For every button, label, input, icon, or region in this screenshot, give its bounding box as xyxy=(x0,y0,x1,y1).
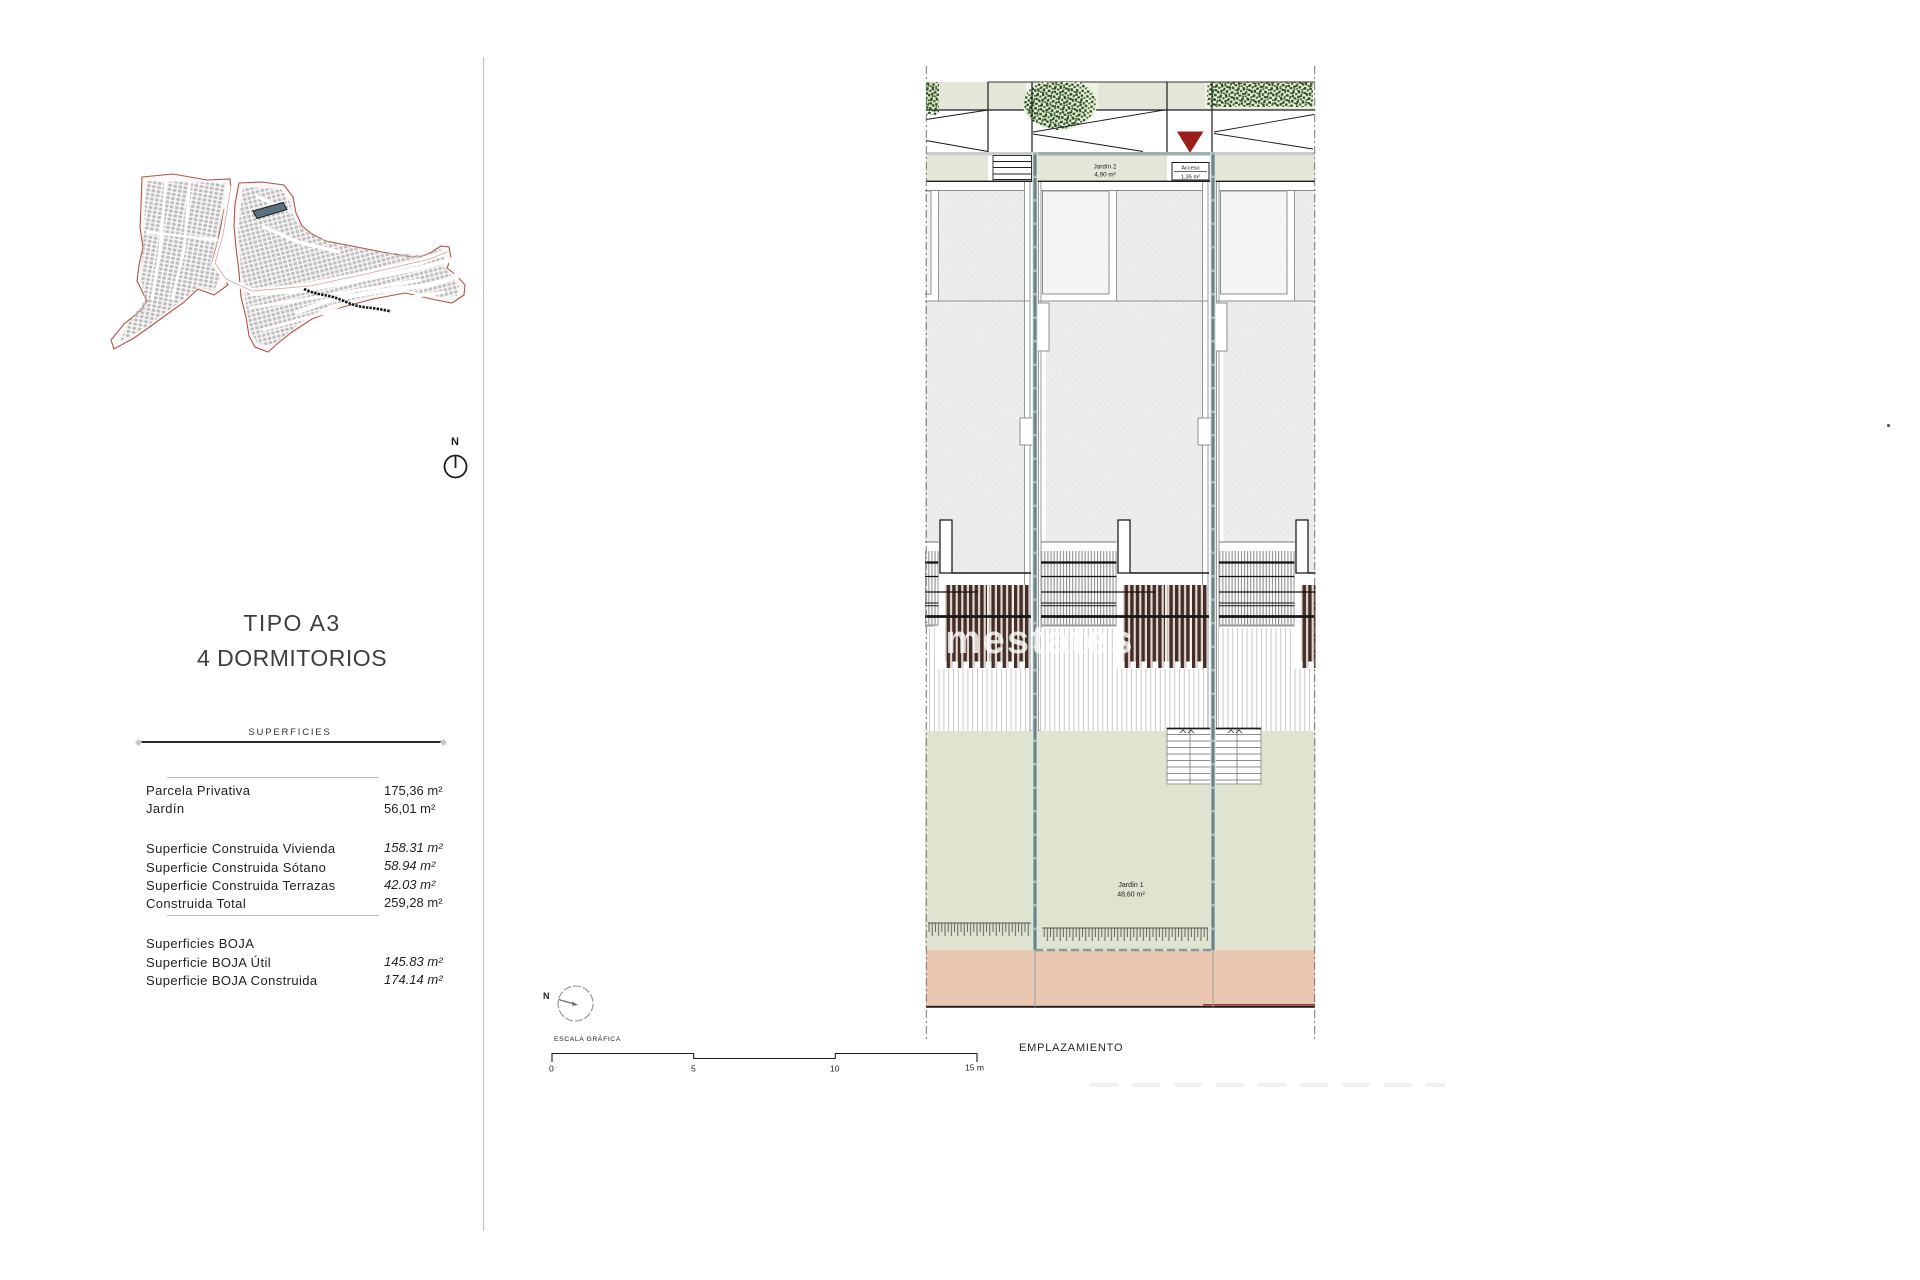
svg-text:0: 0 xyxy=(549,1064,554,1074)
svg-text:1,35 m²: 1,35 m² xyxy=(1181,175,1200,181)
svg-text:15 m: 15 m xyxy=(965,1063,984,1073)
svg-text:48,60 m²: 48,60 m² xyxy=(1117,892,1145,899)
svg-text:Jardín 1: Jardín 1 xyxy=(1118,882,1143,889)
svg-text:N: N xyxy=(543,991,550,1001)
svg-text:4,90 m²: 4,90 m² xyxy=(1094,172,1115,179)
svg-text:ESCALA GRÁFICA: ESCALA GRÁFICA xyxy=(554,1034,621,1043)
svg-text:N: N xyxy=(451,436,459,448)
svg-text:10: 10 xyxy=(830,1064,840,1074)
svg-text:Acceso: Acceso xyxy=(1181,166,1199,172)
svg-text:Jardín 2: Jardín 2 xyxy=(1094,164,1117,171)
svg-text:5: 5 xyxy=(691,1064,696,1074)
svg-text:Imestates: Imestates xyxy=(932,618,1135,662)
